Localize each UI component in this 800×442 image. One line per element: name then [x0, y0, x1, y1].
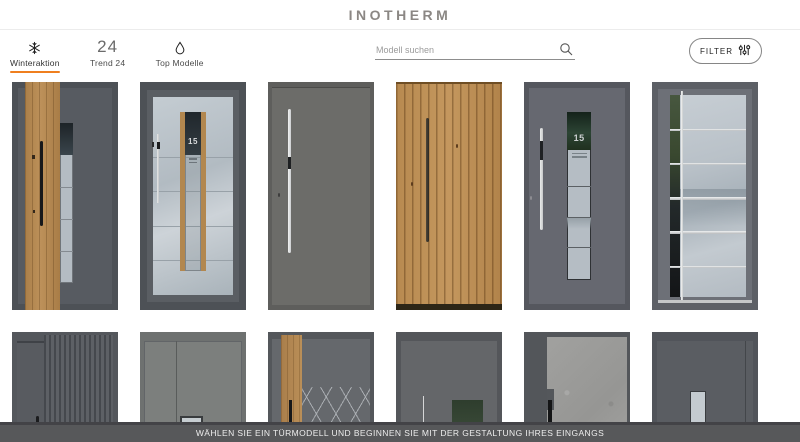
tab-label: Winteraktion [10, 58, 60, 68]
snowflake-icon [28, 37, 41, 55]
tab-top-modelle[interactable]: Top Modelle [156, 37, 204, 68]
door-card-door-6[interactable] [652, 82, 758, 310]
app-header: INOTHERM [0, 0, 800, 30]
filter-button[interactable]: FILTER [689, 38, 762, 64]
drop-icon [174, 37, 186, 55]
door-card-door-1[interactable] [12, 82, 118, 310]
search-icon[interactable] [559, 42, 573, 61]
bottom-bar: WÄHLEN SIE EIN TÜRMODELL UND BEGINNEN SI… [0, 422, 800, 442]
tab-label: Top Modelle [156, 58, 204, 68]
door-card-door-4[interactable] [396, 82, 502, 310]
door-grid: 151515 [12, 82, 788, 442]
model-search [375, 40, 575, 60]
toolbar: Winteraktion 24 Trend 24 Top Modelle FIL… [0, 31, 800, 77]
tab-label: Trend 24 [90, 58, 125, 68]
door-card-door-2[interactable]: 15 [140, 82, 246, 310]
tab-winteraktion[interactable]: Winteraktion [10, 37, 60, 73]
number-24-icon: 24 [97, 37, 118, 55]
brand-logo: INOTHERM [349, 7, 452, 23]
door-card-door-5[interactable]: 15 [524, 82, 630, 310]
bottom-bar-message: WÄHLEN SIE EIN TÜRMODELL UND BEGINNEN SI… [196, 426, 604, 438]
search-input[interactable] [375, 42, 575, 60]
active-tab-indicator [10, 71, 60, 73]
tab-trend-24[interactable]: 24 Trend 24 [84, 37, 132, 68]
door-card-door-3[interactable] [268, 82, 374, 310]
sliders-icon [738, 43, 751, 60]
filter-label: FILTER [700, 47, 733, 56]
